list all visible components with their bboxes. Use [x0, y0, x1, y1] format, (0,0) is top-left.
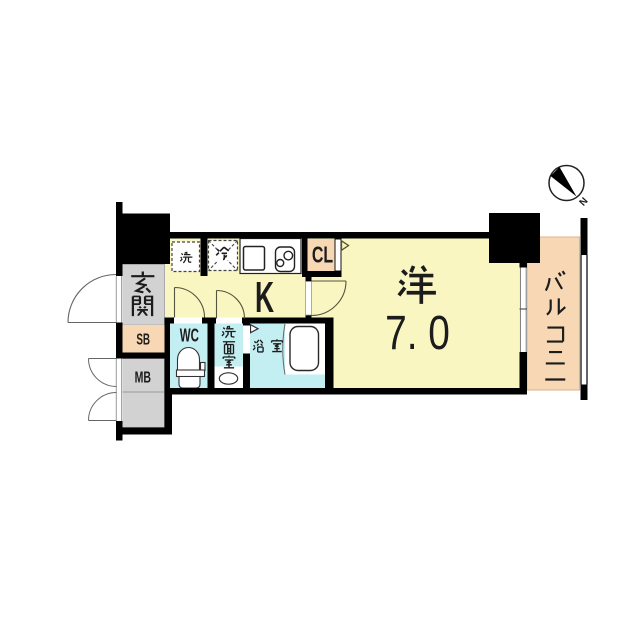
svg-text:7. 0: 7. 0 — [385, 306, 450, 360]
svg-text:SB: SB — [136, 330, 150, 348]
svg-text:CL: CL — [312, 243, 333, 269]
svg-text:WC: WC — [180, 326, 199, 346]
svg-text:MB: MB — [135, 368, 151, 386]
svg-text:K: K — [255, 272, 274, 322]
